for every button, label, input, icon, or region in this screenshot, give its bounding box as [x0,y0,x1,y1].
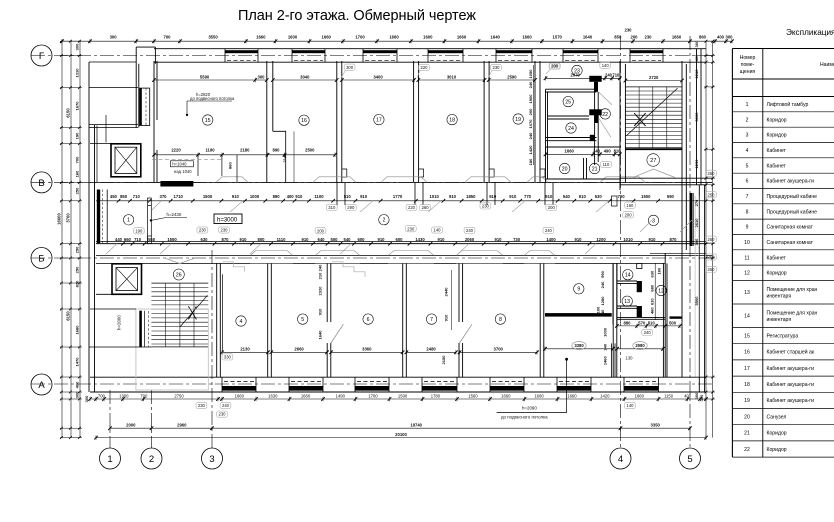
svg-text:1700: 1700 [355,35,365,40]
svg-text:2: 2 [382,218,385,224]
svg-text:1570: 1570 [553,35,563,40]
svg-text:16: 16 [301,118,307,124]
svg-text:100: 100 [596,306,601,313]
svg-text:1660: 1660 [635,393,645,398]
svg-text:910: 910 [509,194,517,199]
svg-text:6: 6 [367,317,370,323]
svg-text:1500: 1500 [398,393,408,398]
svg-text:3700: 3700 [494,347,504,352]
svg-text:9: 9 [577,287,580,293]
svg-text:500: 500 [669,320,677,325]
svg-text:2750: 2750 [174,393,184,398]
svg-text:260: 260 [422,205,430,210]
svg-text:поме-: поме- [741,62,755,68]
svg-text:Коридор: Коридор [767,133,787,139]
svg-text:370: 370 [160,194,168,199]
svg-text:5: 5 [687,454,692,465]
svg-text:5: 5 [301,317,304,323]
svg-text:5590: 5590 [200,74,210,79]
svg-text:1630: 1630 [268,393,278,398]
svg-text:Экспликация: Экспликация [786,28,834,37]
svg-text:3: 3 [746,133,749,139]
svg-text:Кабинет акушера-ги: Кабинет акушера-ги [767,398,815,404]
svg-text:2960: 2960 [177,423,187,428]
svg-text:910: 910 [444,314,449,321]
svg-text:18: 18 [449,118,455,124]
svg-text:910: 910 [240,237,248,242]
svg-text:730: 730 [513,237,521,242]
svg-text:910: 910 [449,194,457,199]
svg-text:700: 700 [140,393,148,398]
svg-text:3350: 3350 [651,423,661,428]
svg-text:250: 250 [75,187,80,194]
svg-text:1280: 1280 [600,296,605,306]
svg-text:200: 200 [631,35,639,40]
svg-text:h=2430: h=2430 [167,212,182,217]
svg-text:h=3000: h=3000 [217,217,238,223]
svg-text:2060: 2060 [465,237,475,242]
svg-text:27: 27 [650,158,656,164]
svg-text:140: 140 [602,63,610,68]
svg-text:700: 700 [75,156,80,163]
svg-text:130: 130 [626,355,634,360]
svg-text:1500: 1500 [203,194,213,199]
svg-text:1680: 1680 [75,325,80,335]
svg-text:2610: 2610 [694,218,699,228]
svg-text:710: 710 [133,194,141,199]
svg-text:310: 310 [328,205,336,210]
svg-text:240: 240 [528,81,533,88]
svg-text:330: 330 [224,355,232,360]
svg-text:7: 7 [430,317,433,323]
svg-text:3: 3 [209,454,214,465]
svg-text:12: 12 [744,271,750,277]
svg-text:инвентаря: инвентаря [767,317,792,323]
svg-text:1660: 1660 [256,35,266,40]
svg-text:до подвесного потолка: до подвесного потолка [501,414,548,419]
svg-text:1000: 1000 [250,194,260,199]
svg-text:250: 250 [75,266,80,273]
svg-text:240: 240 [466,228,474,233]
svg-text:540: 540 [344,237,352,242]
svg-text:8: 8 [499,317,502,323]
svg-text:1550: 1550 [167,237,177,242]
svg-text:910: 910 [545,194,553,199]
svg-text:460: 460 [650,307,655,314]
svg-text:2: 2 [149,454,154,465]
svg-text:1660: 1660 [389,35,399,40]
svg-text:над 1040: над 1040 [174,169,192,174]
svg-text:Наименование: Наименование [820,62,834,68]
svg-text:1460: 1460 [603,355,608,365]
svg-text:Помещение для хран: Помещение для хран [767,287,818,293]
svg-text:Кабинет акушера-ги: Кабинет акушера-ги [767,366,815,372]
svg-text:910: 910 [579,194,587,199]
svg-text:440: 440 [115,237,123,242]
svg-text:Коридор: Коридор [767,271,787,277]
svg-text:400: 400 [75,381,80,388]
svg-text:640: 640 [318,237,326,242]
svg-text:300: 300 [75,43,80,50]
svg-text:250: 250 [708,255,716,260]
svg-text:1: 1 [746,102,749,108]
svg-text:250: 250 [708,171,716,176]
svg-text:160: 160 [75,170,80,177]
svg-text:250: 250 [708,237,716,242]
svg-text:510: 510 [344,194,352,199]
svg-text:инвентаря: инвентаря [767,294,792,300]
svg-text:870: 870 [75,280,80,287]
svg-text:140: 140 [434,228,442,233]
svg-text:Кабинет старшей ак: Кабинет старшей ак [767,349,815,356]
svg-text:4: 4 [240,319,243,325]
svg-text:230: 230 [645,35,653,40]
svg-text:15: 15 [744,333,750,339]
svg-text:25: 25 [565,100,571,106]
svg-text:3380: 3380 [574,343,584,348]
svg-text:870: 870 [670,237,678,242]
svg-text:2720: 2720 [649,75,659,80]
svg-text:610: 610 [650,298,655,305]
svg-text:3550: 3550 [208,35,218,40]
svg-text:2500: 2500 [305,147,315,152]
svg-text:6: 6 [746,179,749,185]
svg-text:710: 710 [612,73,620,78]
svg-text:110: 110 [603,162,610,167]
svg-text:6150: 6150 [66,311,71,321]
svg-text:1150: 1150 [664,393,674,398]
svg-text:1770: 1770 [393,194,403,199]
svg-text:210: 210 [318,272,323,279]
svg-text:3: 3 [652,218,655,224]
svg-text:3360: 3360 [362,347,372,352]
svg-text:20: 20 [744,414,750,420]
svg-text:1430: 1430 [415,237,425,242]
svg-text:1660: 1660 [672,35,682,40]
svg-text:860: 860 [699,35,707,40]
svg-text:810: 810 [648,320,656,325]
svg-text:880: 880 [624,320,632,325]
svg-text:17: 17 [744,366,750,372]
svg-text:500: 500 [331,237,339,242]
svg-text:300: 300 [726,35,734,40]
svg-text:230: 230 [199,228,207,233]
svg-text:12: 12 [658,288,664,294]
svg-text:1300: 1300 [119,393,129,398]
svg-text:530: 530 [595,194,603,199]
svg-text:5500: 5500 [694,296,699,306]
svg-text:1900: 1900 [528,94,533,104]
svg-text:800: 800 [258,237,266,242]
svg-text:240: 240 [603,343,608,350]
svg-text:710: 710 [134,237,142,242]
svg-text:700: 700 [98,393,106,398]
svg-text:Санузел: Санузел [767,414,787,420]
svg-text:230: 230 [493,65,501,70]
svg-text:230: 230 [407,226,415,231]
svg-text:Санитарная комнат: Санитарная комнат [767,240,814,246]
svg-text:1670: 1670 [75,101,80,111]
svg-text:550: 550 [148,237,156,242]
svg-text:Регистратура: Регистратура [767,333,799,339]
svg-text:2220: 2220 [171,147,181,152]
svg-text:490: 490 [604,149,612,154]
svg-text:22: 22 [744,447,750,453]
svg-text:16: 16 [744,350,750,356]
svg-text:600: 600 [396,237,404,242]
svg-text:870: 870 [222,237,230,242]
svg-text:300: 300 [110,35,118,40]
svg-text:10: 10 [744,240,750,246]
svg-text:1500: 1500 [641,194,651,199]
svg-text:300: 300 [699,394,704,401]
svg-text:14: 14 [625,273,631,279]
svg-text:1660: 1660 [322,35,332,40]
svg-text:1050: 1050 [528,69,533,79]
svg-text:1010: 1010 [623,237,633,242]
svg-text:Кабинет: Кабинет [767,163,787,169]
svg-text:680: 680 [650,284,655,291]
svg-text:3010: 3010 [447,74,457,79]
svg-text:660: 660 [124,237,132,242]
svg-text:3400: 3400 [373,74,383,79]
svg-text:Кабинет акушера-ги: Кабинет акушера-ги [767,382,815,388]
svg-text:230: 230 [221,228,229,233]
svg-text:890: 890 [273,194,281,199]
svg-text:2: 2 [746,117,749,123]
svg-text:Процедурный кабине: Процедурный кабине [767,193,818,200]
svg-text:2150: 2150 [441,355,446,365]
svg-text:18: 18 [744,382,750,388]
svg-text:11: 11 [744,255,749,261]
svg-text:220: 220 [421,65,429,70]
svg-text:910: 910 [489,194,497,199]
svg-text:180: 180 [657,267,662,274]
svg-text:План 2-го этажа. Обмерный черт: План 2-го этажа. Обмерный чертеж [238,8,476,24]
svg-text:910: 910 [232,194,240,199]
svg-text:1660: 1660 [565,149,575,154]
svg-text:Кабинет акушера-ги: Кабинет акушера-ги [767,179,815,185]
svg-text:1100: 1100 [314,194,324,199]
svg-text:1640: 1640 [318,330,323,340]
svg-text:1000: 1000 [603,327,608,337]
svg-text:240: 240 [222,403,230,408]
svg-text:В: В [38,178,44,189]
svg-text:1190: 1190 [205,147,215,152]
svg-text:300: 300 [694,238,699,245]
svg-text:1640: 1640 [583,35,593,40]
svg-text:15: 15 [205,118,211,124]
svg-text:440: 440 [600,309,605,316]
svg-text:1660: 1660 [457,35,467,40]
svg-text:3700: 3700 [66,213,71,223]
svg-text:400: 400 [694,54,699,61]
svg-text:1850: 1850 [466,194,476,199]
svg-text:910: 910 [302,237,310,242]
svg-text:570: 570 [638,320,646,325]
svg-text:1560: 1560 [468,393,478,398]
svg-text:7: 7 [746,194,749,200]
svg-text:540: 540 [563,194,571,199]
svg-text:А: А [38,380,45,391]
svg-text:Коридор: Коридор [767,447,787,453]
svg-text:200: 200 [528,108,533,115]
svg-text:160: 160 [626,203,634,208]
svg-text:1490: 1490 [336,393,346,398]
svg-text:2660: 2660 [294,347,304,352]
svg-text:до подвесного потолка: до подвесного потолка [190,96,235,101]
svg-text:1700: 1700 [368,393,378,398]
svg-text:h=2090: h=2090 [522,406,537,411]
svg-text:24: 24 [568,126,574,132]
svg-text:Помещение для хран: Помещение для хран [767,311,818,317]
svg-text:300: 300 [258,74,266,79]
svg-text:1660: 1660 [235,393,245,398]
svg-text:Г: Г [39,51,44,62]
svg-text:4: 4 [618,454,623,465]
svg-text:300: 300 [694,392,699,399]
svg-text:910: 910 [438,237,446,242]
svg-text:200: 200 [551,64,559,69]
svg-text:Процедурный кабине: Процедурный кабине [767,208,818,215]
svg-text:Номер: Номер [740,55,756,61]
svg-text:1600: 1600 [534,393,544,398]
svg-text:300: 300 [694,40,699,47]
svg-text:600: 600 [358,237,366,242]
svg-text:Кабинет: Кабинет [767,148,787,154]
svg-text:230: 230 [219,412,227,417]
svg-text:240: 240 [318,264,323,271]
svg-text:17: 17 [376,118,382,124]
svg-text:910: 910 [378,237,386,242]
svg-text:20100: 20100 [395,432,407,437]
svg-text:1200: 1200 [596,237,606,242]
svg-text:1010: 1010 [430,194,440,199]
svg-text:300: 300 [84,395,89,402]
svg-text:1710: 1710 [174,194,184,199]
svg-text:850: 850 [614,35,622,40]
svg-text:2320: 2320 [318,286,323,296]
svg-text:2130: 2130 [240,347,250,352]
svg-text:250: 250 [708,267,716,272]
svg-text:910: 910 [318,308,323,315]
svg-text:21: 21 [592,166,598,172]
svg-text:2000: 2000 [126,423,136,428]
svg-text:1400: 1400 [546,237,556,242]
svg-text:1660: 1660 [501,393,511,398]
svg-text:1210: 1210 [694,69,699,79]
svg-text:1660: 1660 [522,35,532,40]
svg-text:Б: Б [38,253,44,264]
svg-text:400: 400 [684,393,692,398]
svg-text:3000: 3000 [694,112,699,122]
svg-text:240: 240 [593,149,601,154]
svg-text:910: 910 [575,237,583,242]
svg-text:2440: 2440 [444,287,449,297]
svg-text:230: 230 [482,204,490,209]
svg-text:h=2060: h=2060 [116,315,121,330]
svg-text:770: 770 [524,194,532,199]
svg-text:1640: 1640 [491,35,501,40]
svg-text:200: 200 [317,228,325,233]
svg-text:2180: 2180 [240,147,250,152]
svg-text:450: 450 [110,194,118,199]
svg-text:200: 200 [625,212,633,217]
svg-text:14: 14 [744,314,750,320]
svg-text:910: 910 [649,237,657,242]
svg-text:290: 290 [347,205,355,210]
svg-text:2980: 2980 [635,343,645,348]
svg-text:300: 300 [346,65,354,70]
svg-text:1420: 1420 [528,145,533,155]
svg-text:700: 700 [164,35,172,40]
svg-text:240: 240 [528,132,533,139]
svg-text:3040: 3040 [300,74,310,79]
svg-text:19740: 19740 [410,423,422,428]
svg-text:250: 250 [708,192,716,197]
svg-text:1780: 1780 [431,393,441,398]
svg-text:19: 19 [515,117,521,123]
svg-text:990: 990 [600,270,605,277]
svg-text:220: 220 [408,205,416,210]
svg-text:9: 9 [746,225,749,231]
svg-text:230: 230 [625,28,633,33]
svg-text:21: 21 [744,431,750,437]
svg-text:Санитарная комнат: Санитарная комнат [767,225,814,231]
svg-text:Кабинет: Кабинет [767,255,787,261]
svg-text:140: 140 [627,403,635,408]
svg-text:700: 700 [618,194,626,199]
svg-text:270: 270 [694,199,699,206]
svg-text:1600: 1600 [288,35,298,40]
svg-text:щения: щения [740,69,756,75]
svg-text:16000: 16000 [57,213,62,225]
svg-text:5: 5 [746,163,749,169]
svg-text:240: 240 [545,228,553,233]
svg-text:300: 300 [75,391,80,398]
svg-text:1470: 1470 [75,357,80,367]
svg-text:250: 250 [75,246,80,253]
svg-text:400: 400 [717,35,725,40]
svg-text:200: 200 [548,205,556,210]
svg-text:190: 190 [75,132,80,139]
svg-text:400: 400 [287,194,295,199]
svg-text:240: 240 [600,281,605,288]
svg-text:13: 13 [744,290,750,296]
svg-text:22: 22 [602,112,608,118]
svg-text:20: 20 [562,166,568,172]
svg-text:890: 890 [273,147,281,152]
svg-text:1070: 1070 [528,119,533,129]
svg-text:1660: 1660 [567,393,577,398]
svg-text:1310: 1310 [75,68,80,78]
svg-text:1660: 1660 [301,393,311,398]
svg-text:23: 23 [574,68,580,74]
svg-text:13: 13 [624,299,630,305]
svg-text:h=1040: h=1040 [172,162,187,167]
svg-text:1: 1 [127,218,130,224]
svg-text:190: 190 [135,228,143,233]
svg-text:630: 630 [650,270,655,277]
svg-text:6150: 6150 [66,108,71,118]
svg-text:1110: 1110 [277,237,287,242]
svg-text:910: 910 [495,237,503,242]
svg-text:1290: 1290 [694,159,699,169]
svg-text:Коридор: Коридор [767,117,787,123]
svg-text:1600: 1600 [423,35,433,40]
svg-text:1: 1 [107,454,112,465]
svg-text:850: 850 [120,194,128,199]
